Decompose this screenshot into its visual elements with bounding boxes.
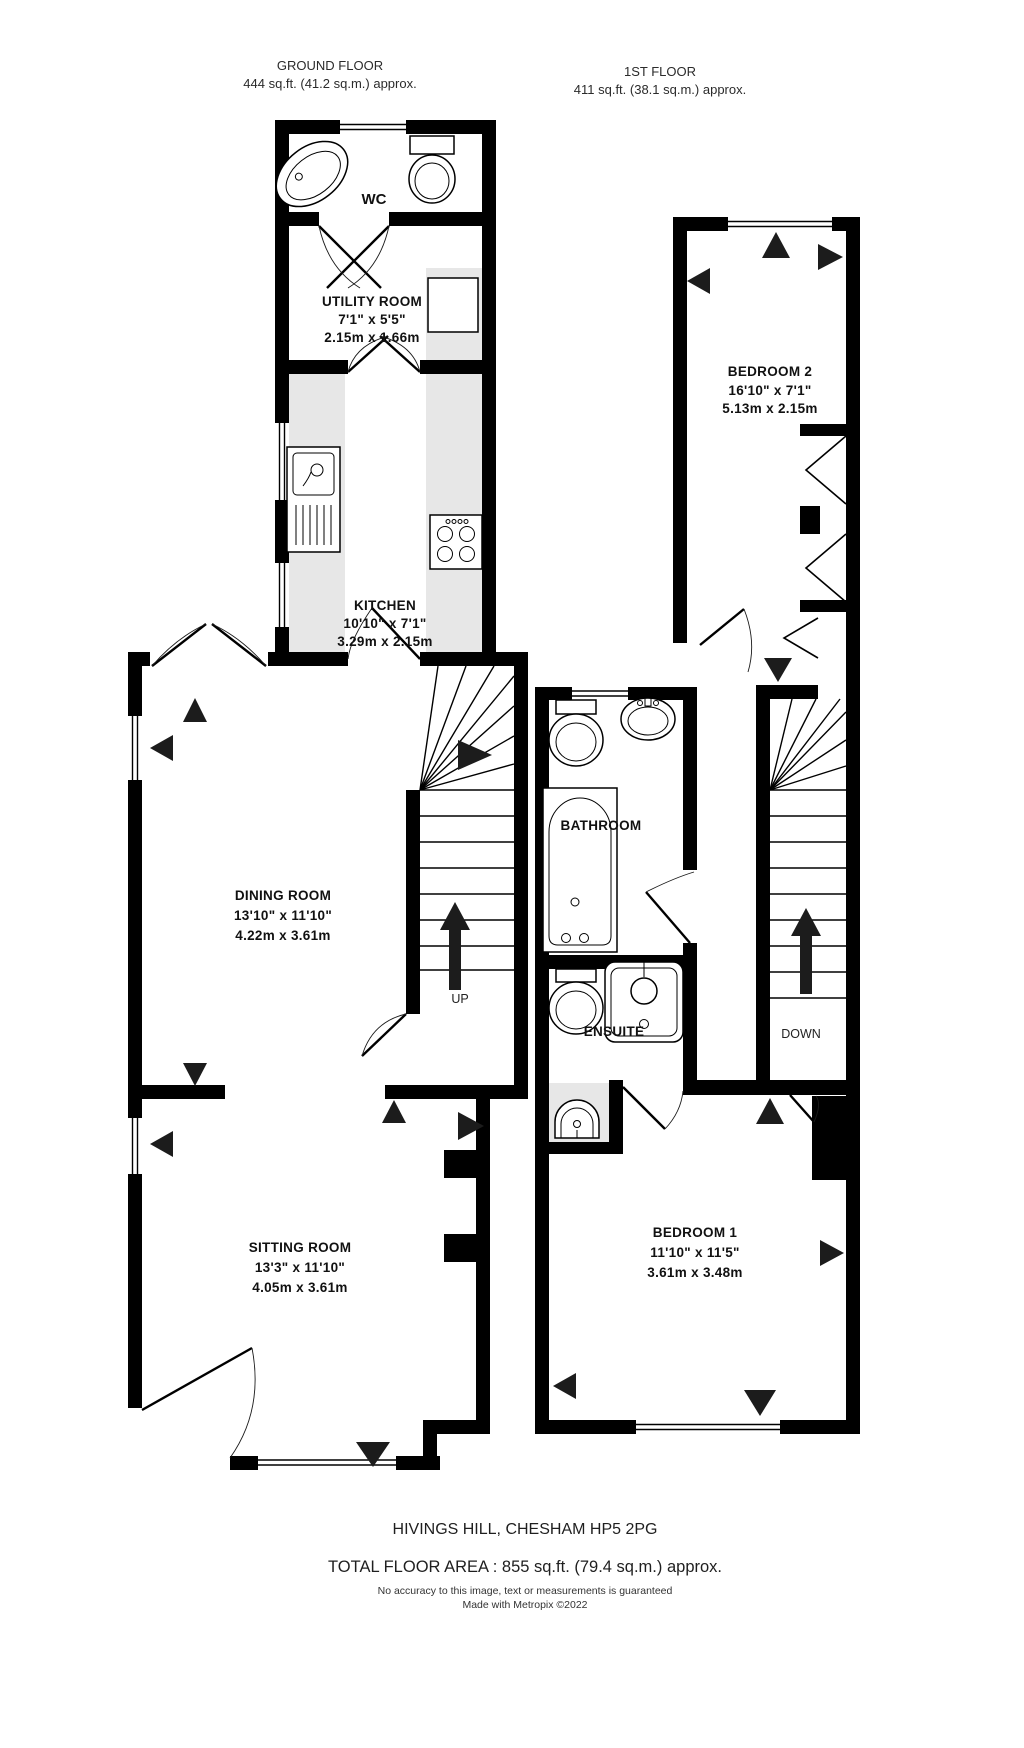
dining-name: DINING ROOM	[235, 888, 331, 903]
bedroom2-window	[728, 217, 832, 231]
direction-arrow-up	[183, 698, 207, 722]
direction-arrow-up	[762, 232, 790, 258]
dining-window	[128, 716, 142, 780]
direction-arrow-down	[744, 1390, 776, 1416]
bay-door-swing	[142, 1348, 255, 1458]
bathroom-window	[572, 687, 628, 700]
door-swing	[623, 1087, 683, 1129]
direction-arrow-right	[820, 1240, 844, 1266]
wardrobe-zigzag	[784, 436, 846, 658]
bath-icon	[543, 788, 617, 952]
credit-text: Made with Metropix ©2022	[462, 1599, 587, 1611]
kitchen-size-metric: 3.29m x 2.15m	[337, 634, 432, 649]
direction-arrow-down	[183, 1063, 207, 1086]
floorplan-page: GROUND FLOOR 444 sq.ft. (41.2 sq.m.) app…	[0, 0, 1024, 1748]
floor-headers: GROUND FLOOR 444 sq.ft. (41.2 sq.m.) app…	[243, 58, 746, 97]
stair-up-arrow-shaft	[800, 936, 812, 994]
total-floor-area: TOTAL FLOOR AREA : 855 sq.ft. (79.4 sq.m…	[328, 1558, 722, 1576]
washing-machine-icon	[428, 278, 478, 332]
sitting-size-metric: 4.05m x 3.61m	[252, 1280, 347, 1295]
dining-size-metric: 4.22m x 3.61m	[235, 928, 330, 943]
chimney-breast	[812, 1096, 846, 1180]
property-address: HIVINGS HILL, CHESHAM HP5 2PG	[393, 1521, 658, 1538]
direction-arrow-left	[553, 1373, 576, 1399]
direction-arrow-right	[818, 244, 843, 270]
door-swing	[700, 609, 752, 672]
kitchen-size-imperial: 10'10" x 7'1"	[343, 616, 426, 631]
disclaimer-text: No accuracy to this image, text or measu…	[378, 1585, 673, 1597]
wc-window	[340, 120, 406, 134]
first-floor-plan: DOWN BEDROOM 2 16'10" x 7'1" 5.13m x 2.1…	[535, 217, 860, 1434]
door-swing	[319, 226, 389, 288]
viewpoint-arrows-ground	[150, 698, 484, 1467]
kitchen-label: KITCHEN 10'10" x 7'1" 3.29m x 2.15m	[337, 598, 432, 649]
kitchen-window-lower	[275, 563, 289, 627]
sitting-size-imperial: 13'3" x 11'10"	[255, 1260, 345, 1275]
french-doors-swing	[152, 624, 266, 666]
dining-room-label: DINING ROOM 13'10" x 11'10" 4.22m x 3.61…	[234, 888, 332, 943]
sitting-room-side-window	[128, 1118, 142, 1174]
corner-basin-icon	[555, 1100, 599, 1138]
bathroom-label: BATHROOM	[561, 818, 642, 833]
utility-size-metric: 2.15m x 1.66m	[324, 330, 419, 345]
direction-arrow-left	[150, 1131, 173, 1157]
door-swing	[362, 1014, 406, 1056]
direction-arrow-left	[150, 735, 173, 761]
bedroom1-size-metric: 3.61m x 3.48m	[647, 1265, 742, 1280]
stair-direction-arrow	[458, 740, 492, 770]
utility-size-imperial: 7'1" x 5'5"	[338, 312, 406, 327]
sitting-name: SITTING ROOM	[249, 1240, 352, 1255]
ground-floor-area: 444 sq.ft. (41.2 sq.m.) approx.	[243, 76, 416, 91]
first-floor-title: 1ST FLOOR	[624, 64, 696, 79]
footer: HIVINGS HILL, CHESHAM HP5 2PG TOTAL FLOO…	[328, 1521, 722, 1611]
utility-room-label: UTILITY ROOM 7'1" x 5'5" 2.15m x 1.66m	[322, 294, 422, 345]
bedroom1-label: BEDROOM 1 11'10" x 11'5" 3.61m x 3.48m	[647, 1225, 742, 1280]
stair-up-arrow-head	[440, 902, 470, 930]
stair-up-arrow-shaft	[449, 930, 461, 990]
kitchen-name: KITCHEN	[354, 598, 416, 613]
dining-size-imperial: 13'10" x 11'10"	[234, 908, 332, 923]
ground-floor-title: GROUND FLOOR	[277, 58, 383, 73]
stairs-down: DOWN	[770, 699, 846, 1041]
direction-arrow-up	[756, 1098, 784, 1124]
sitting-room-label: SITTING ROOM 13'3" x 11'10" 4.05m x 3.61…	[249, 1240, 352, 1295]
direction-arrow-down	[764, 658, 792, 682]
toilet-icon	[549, 700, 603, 766]
ground-floor-plan: UP WC UTILITY ROOM 7'1" x 5'5" 2.15m	[128, 120, 528, 1470]
stair-up-arrow-head	[791, 908, 821, 936]
bedroom2-size-metric: 5.13m x 2.15m	[722, 401, 817, 416]
bedroom2-label: BEDROOM 2 16'10" x 7'1" 5.13m x 2.15m	[722, 364, 817, 416]
bedroom2-size-imperial: 16'10" x 7'1"	[728, 383, 811, 398]
down-label: DOWN	[781, 1027, 821, 1041]
basin-icon	[621, 698, 675, 740]
ensuite-label: ENSUITE	[584, 1024, 645, 1039]
fireplace-chimney-breast	[444, 1150, 490, 1262]
bedroom1-front-window	[636, 1420, 780, 1434]
first-floor-area: 411 sq.ft. (38.1 sq.m.) approx.	[574, 82, 746, 97]
direction-arrow-up	[382, 1100, 406, 1123]
stairs-up: UP	[420, 666, 514, 1006]
floorplan-drawing: GROUND FLOOR 444 sq.ft. (41.2 sq.m.) app…	[0, 0, 1024, 1748]
bedroom1-size-imperial: 11'10" x 11'5"	[650, 1245, 740, 1260]
hob-icon	[430, 515, 482, 569]
wc-label: WC	[362, 191, 387, 208]
utility-name: UTILITY ROOM	[322, 294, 422, 309]
sink-icon	[287, 447, 340, 552]
up-label: UP	[451, 992, 468, 1006]
toilet-icon	[409, 136, 455, 203]
door-swing	[646, 872, 694, 943]
direction-arrow-left	[687, 268, 710, 294]
bedroom1-name: BEDROOM 1	[653, 1225, 738, 1240]
bedroom2-name: BEDROOM 2	[728, 364, 812, 379]
